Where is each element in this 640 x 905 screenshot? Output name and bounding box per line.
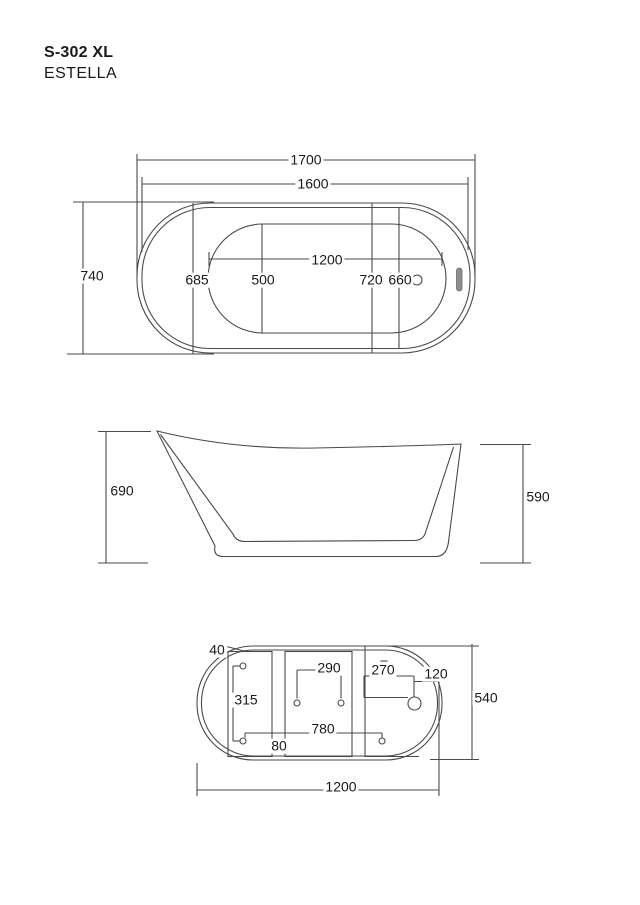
dim-label-base-length: 1200	[323, 780, 358, 795]
mounting-hole	[240, 738, 246, 744]
dim-label-rim-length: 1600	[295, 177, 330, 192]
dim-label-basin-length: 1200	[309, 253, 344, 268]
overflow-slot	[457, 268, 463, 291]
bathtub-technical-drawing	[0, 0, 640, 905]
side-outer-profile	[157, 431, 461, 557]
mounting-hole	[379, 738, 385, 744]
mounting-hole	[338, 700, 344, 706]
dim-label-front-height: 590	[524, 490, 551, 505]
dim-label-back-offset: 685	[183, 273, 210, 288]
side-view	[98, 431, 531, 563]
drain-hole-bottom-view	[408, 697, 421, 710]
dim-label-corner-offset: 40	[207, 643, 227, 658]
dim-label-drain-to-edge: 120	[422, 667, 449, 682]
top-view	[67, 154, 475, 354]
dim-label-overall-width: 740	[78, 269, 105, 284]
dim-label-base-width: 540	[472, 691, 499, 706]
mounting-hole	[240, 663, 246, 669]
dim-label-back-height: 690	[108, 484, 135, 499]
mounting-hole	[294, 700, 300, 706]
dim-label-overall-length: 1700	[288, 153, 323, 168]
dim-label-seat-width: 500	[249, 273, 276, 288]
dim-label-pad-spacing: 290	[315, 661, 342, 676]
drawing-page: S-302 XL ESTELLA	[0, 0, 640, 905]
dim-label-gap: 80	[269, 739, 289, 754]
dim-label-hole-spacing-h: 780	[309, 722, 336, 737]
dim-label-drain-b: 660	[386, 273, 413, 288]
dim-label-drain-offset: 270	[369, 663, 396, 678]
dim-label-drain-a: 720	[357, 273, 384, 288]
dim-label-hole-spacing-v: 315	[232, 693, 259, 708]
